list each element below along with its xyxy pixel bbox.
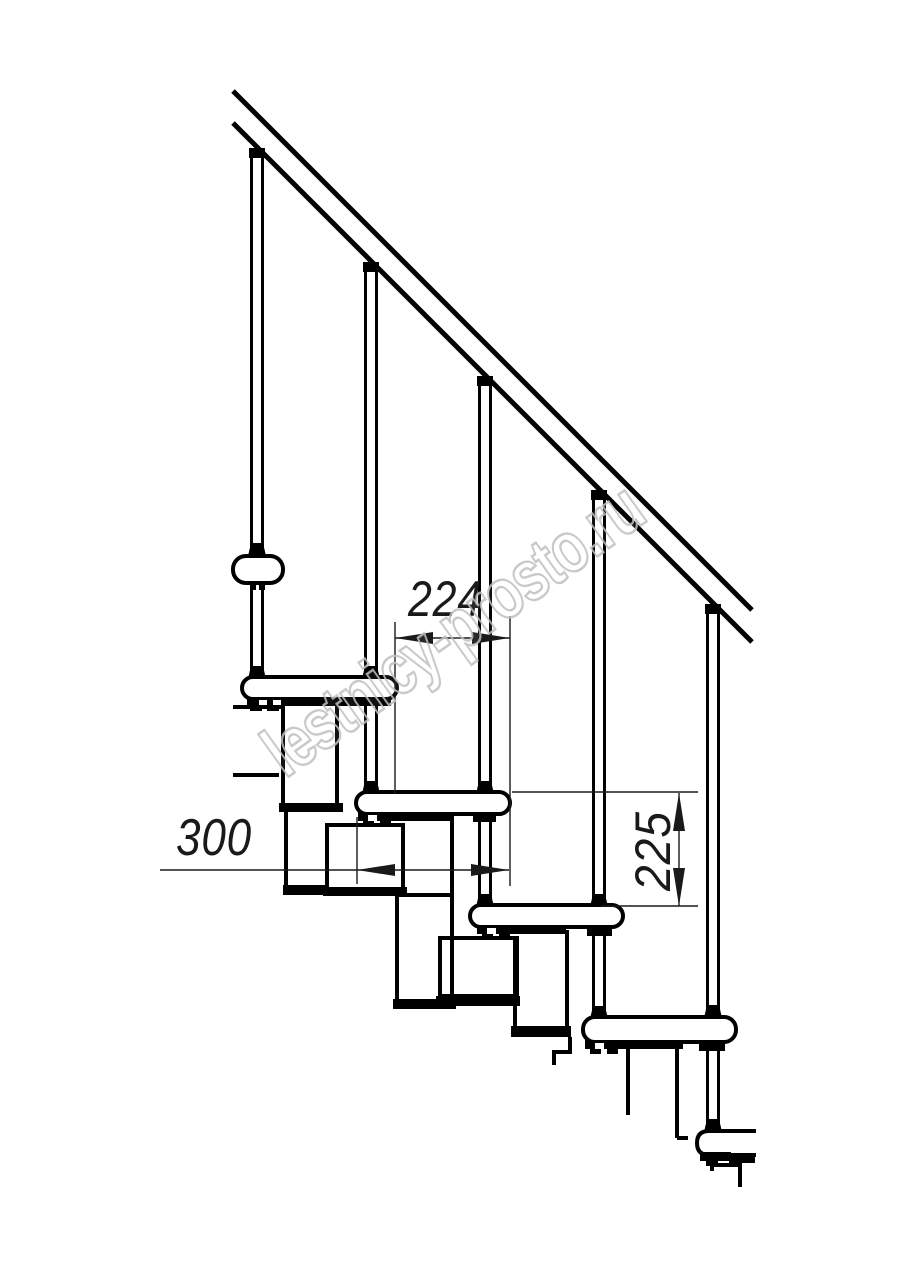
baluster-5 <box>704 604 722 1132</box>
tread-2 <box>356 792 510 814</box>
baluster-2-cap <box>363 262 379 272</box>
module-chain <box>233 703 740 1187</box>
baluster-1 <box>248 148 266 679</box>
dim-224-arrow-left <box>395 632 433 644</box>
dim-224-label: 224 <box>407 571 482 627</box>
tread-1 <box>242 677 397 699</box>
dim-225-label: 225 <box>625 811 681 892</box>
tread-3 <box>470 905 623 927</box>
tread-5-mount <box>700 1152 731 1161</box>
dimension-tread-depth: 300 <box>160 809 509 884</box>
handrail-top-line <box>233 91 752 610</box>
staircase-drawing-svg: 224 300 225 <box>0 0 914 1280</box>
module-1 <box>283 703 337 806</box>
baluster-1-cap <box>249 148 265 158</box>
baluster-4-cap <box>591 490 607 500</box>
upper-tread-bracket <box>233 556 283 583</box>
tread-4 <box>583 1017 736 1042</box>
module-3-tube <box>515 930 567 1026</box>
baluster-4 <box>590 490 608 1019</box>
baluster-5-cap <box>705 604 721 614</box>
baluster-3-cap <box>477 376 493 386</box>
tread-5-clipped <box>697 1131 756 1155</box>
module-2 <box>327 825 403 891</box>
dim-300-label: 300 <box>176 809 252 867</box>
module-5-stub <box>712 1163 740 1187</box>
handrail <box>233 91 752 642</box>
baluster-2 <box>362 262 380 794</box>
module-2-tube <box>397 814 452 1000</box>
module-4 <box>628 1049 688 1138</box>
staircase-drawing: 224 300 225 lestnicy-prosto.ru <box>0 0 914 1280</box>
module-3-foot <box>554 1037 570 1065</box>
dim-300-arrow-left <box>357 864 395 876</box>
